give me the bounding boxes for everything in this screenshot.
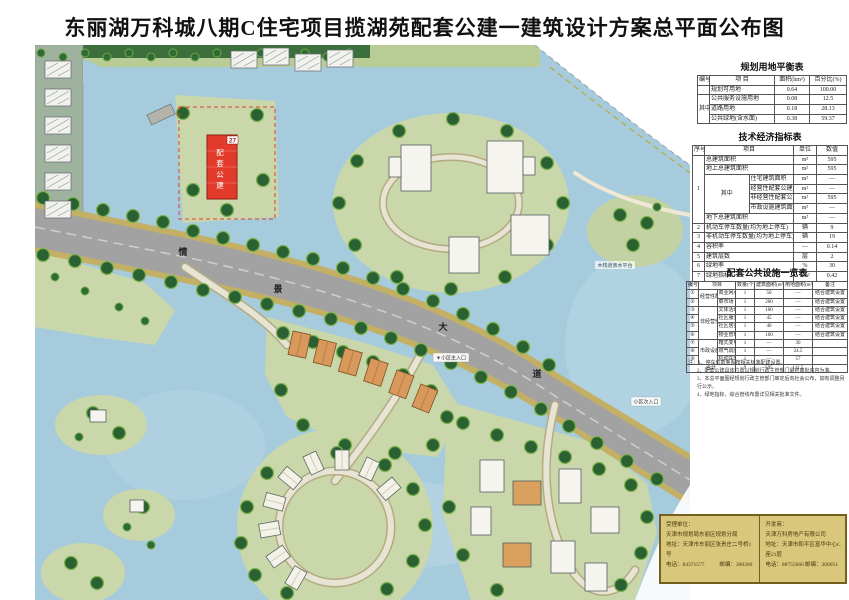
td-el: 1 <box>736 315 755 323</box>
td-el: 28.13 <box>810 105 847 115</box>
tree-icon <box>103 53 111 61</box>
td-el: 文体活动站 <box>717 306 736 314</box>
td-el: — <box>755 339 784 347</box>
tree-icon <box>391 271 404 284</box>
td-el: 1 <box>736 298 755 306</box>
page-title: 东丽湖万科城八期C住宅项目揽湖苑配套公建一建筑设计方案总平面公布图 <box>0 12 849 42</box>
td-el: 1 <box>736 339 755 347</box>
td-el: 燃气调压站 <box>717 348 736 356</box>
tree-icon <box>45 89 71 106</box>
accepting-unit-role: 受理单位： <box>666 521 755 531</box>
boardwalk-label: 木栈道亲水平台 <box>597 262 632 269</box>
td-el: ⑦ <box>687 339 699 347</box>
td-el: ④ <box>687 315 699 323</box>
tree-icon <box>45 173 71 190</box>
developer-zip: 邮编：300051 <box>805 561 838 571</box>
tree-icon <box>541 157 554 170</box>
td-el: m² <box>794 165 817 175</box>
note-line: 2、配套公建具体位置以规划行政主管部门最终审批内容为准。 <box>688 368 846 376</box>
tree-icon <box>241 501 254 514</box>
th-el: 百分比(%) <box>810 76 847 86</box>
th-el: 编号 <box>698 76 710 86</box>
tr-el: 地上总建筑面积m²595 <box>693 165 848 175</box>
tree-icon <box>505 386 518 399</box>
td-el: 非经营性配套公建 <box>699 306 718 339</box>
tree-icon <box>355 322 368 335</box>
main-entrance-label: ▼小区主入口 <box>436 355 466 362</box>
tree-icon <box>457 417 470 430</box>
tr-el: ⑦市政设施箱式变电站1—30 <box>687 339 848 347</box>
note-line: 3、本总平面图经规划行政主管部门审定后向社会公布，如有调整另行公示。 <box>688 376 846 392</box>
td-el: 容积率 <box>705 242 794 252</box>
th-el: 备注 <box>813 282 848 290</box>
text-el: 配 <box>216 148 224 157</box>
td-el: 595 <box>817 194 848 204</box>
accepting-unit-name: 天津市规划局东丽区规划分局 <box>666 531 755 541</box>
tree-icon <box>325 313 338 326</box>
td-el: 1 <box>736 290 755 298</box>
div-el: 电话：84371577 邮编：300300 <box>666 561 755 571</box>
tree-icon <box>625 479 638 492</box>
tr-el: 2机动车停车数量(均为地上停车)辆9 <box>693 223 848 233</box>
tree-icon <box>517 341 530 354</box>
tree-icon <box>491 584 504 597</box>
tree-icon <box>45 117 71 134</box>
text-el: 套 <box>216 158 224 168</box>
td-el: 1 <box>736 348 755 356</box>
accepting-unit-address: 地址：天津市东丽区张贵庄二号桥1号 <box>666 541 755 561</box>
note-line: 注：1、停车位数量系按相关标准配建设置。 <box>688 360 846 368</box>
tree-icon <box>635 547 648 560</box>
highlighted-public-building: 27 配 套 公 建 <box>207 135 238 199</box>
tree-icon <box>441 411 454 424</box>
land-balance-title: 规划用地平衡表 <box>697 60 847 73</box>
tree-icon <box>499 271 512 284</box>
tree-icon <box>333 197 346 210</box>
td-el: — <box>784 306 813 314</box>
tree-icon <box>487 323 500 336</box>
td-el: 经营性配套公建 <box>699 290 718 307</box>
ne-hill <box>587 195 683 267</box>
td-el: 1 <box>736 331 755 339</box>
tree-icon <box>397 283 410 296</box>
tree-icon <box>337 262 350 275</box>
td-el: 2 <box>817 252 848 262</box>
tree-icon <box>277 246 290 259</box>
tree-icon <box>475 371 488 384</box>
tree-icon <box>165 276 178 289</box>
developer-panel: 开发商： 天津万科房地产有限公司 地址：天津市和平区富华中心C座21层 电话：8… <box>760 516 845 582</box>
tree-icon <box>559 451 572 464</box>
road-char-2: 景 <box>273 284 282 294</box>
td-el: m² <box>794 194 817 204</box>
td-el: — <box>784 315 813 323</box>
tr-el: 地下总建筑面积m²— <box>693 213 848 223</box>
td-el: 40 <box>755 323 784 331</box>
td-el: 0.08 <box>775 95 810 105</box>
td-el: — <box>817 175 848 185</box>
tree-icon <box>51 273 59 281</box>
td-el: 结合建筑设置 <box>813 306 848 314</box>
tree-icon <box>335 450 349 470</box>
td-el: 12.5 <box>810 95 847 105</box>
tree-icon <box>45 201 71 218</box>
tree-icon <box>65 557 78 570</box>
rect-el <box>401 145 431 191</box>
tree-icon <box>187 225 200 238</box>
road-char-3: 大 <box>438 321 447 332</box>
rect-el <box>591 507 619 533</box>
tree-icon <box>501 125 514 138</box>
td-el: m² <box>794 204 817 214</box>
tree-icon <box>295 54 321 71</box>
tree-icon <box>221 204 234 217</box>
tree-icon <box>651 473 664 486</box>
tree-icon <box>37 249 50 262</box>
td-el <box>813 339 848 347</box>
tree-icon <box>367 272 380 285</box>
tree-icon <box>59 53 67 61</box>
td-el: 市政设施建筑面积 <box>749 204 794 214</box>
tbody-el: 编号 项目 数量(个) 建筑面积(m²) 用地面积(m²) 备注 ①经营性配套公… <box>687 282 848 373</box>
tree-icon <box>275 384 288 397</box>
td-el: 160 <box>755 331 784 339</box>
th-el: 数量(个) <box>736 282 755 290</box>
td-el: — <box>817 213 848 223</box>
site-plan-svg: 27 配 套 公 建 情 景 大 道 ▼小区主入口 小区次入口 木栈 <box>35 45 690 600</box>
tree-icon <box>231 51 257 68</box>
tree-icon <box>69 255 82 268</box>
tree-icon <box>113 427 126 440</box>
tree-icon <box>447 113 460 126</box>
table-notes: 注：1、停车位数量系按相关标准配建设置。 2、配套公建具体位置以规划行政主管部门… <box>688 360 846 400</box>
rect-el <box>130 500 144 512</box>
text-el: 建 <box>216 180 224 190</box>
th-el: 用地面积(m²) <box>784 282 813 290</box>
td-el: 其中 <box>698 95 710 124</box>
th-el: 单位 <box>794 146 817 156</box>
td-el: 1 <box>736 323 755 331</box>
td-el: m² <box>794 175 817 185</box>
td-el: — <box>784 331 813 339</box>
tree-icon <box>191 53 199 61</box>
td-el: 住宅建筑面积 <box>749 175 794 185</box>
tree-icon <box>81 287 89 295</box>
td-el: 商业网点 <box>717 290 736 298</box>
td-el: 0.18 <box>775 105 810 115</box>
tree-icon <box>263 48 289 65</box>
tree-icon <box>249 569 262 582</box>
td-el: — <box>817 204 848 214</box>
tree-icon <box>627 239 640 252</box>
td-el: 地下总建筑面积 <box>705 213 794 223</box>
td-el: 0.14 <box>817 242 848 252</box>
td-el: — <box>794 242 817 252</box>
td-el: 结合建筑设置 <box>813 298 848 306</box>
td-el: 30 <box>784 339 813 347</box>
accepting-unit-phone: 电话：84371577 <box>666 561 705 571</box>
tree-icon <box>261 298 274 311</box>
td-el: 3 <box>693 233 705 243</box>
tree-icon <box>385 332 398 345</box>
td-el <box>698 85 710 95</box>
tree-icon <box>407 483 420 496</box>
td-el: 建筑层数 <box>705 252 794 262</box>
tr-el: ③非经营性配套公建文体活动站1100—结合建筑设置 <box>687 306 848 314</box>
td-el: 辆 <box>794 233 817 243</box>
td-el: 4 <box>693 242 705 252</box>
th-el: 数值 <box>817 146 848 156</box>
tree-icon <box>379 459 392 472</box>
tree-icon <box>407 555 420 568</box>
rect-el <box>523 157 535 175</box>
tree-icon <box>169 49 177 57</box>
th-el: 建筑面积(m²) <box>755 282 784 290</box>
tree-icon <box>141 317 149 325</box>
tr-el: 编号 项 目 面积(hm²) 百分比(%) <box>698 76 847 86</box>
rect-el <box>90 410 106 422</box>
tree-icon <box>75 433 83 441</box>
g-el: ▼小区主入口 <box>433 353 469 362</box>
td-el: — <box>784 298 813 306</box>
td-el: 0.64 <box>775 85 810 95</box>
td-el: 总建筑面积 <box>705 155 794 165</box>
td-el: 公共绿地(含水面) <box>710 114 775 124</box>
tree-icon <box>81 49 89 57</box>
tree-icon <box>525 441 538 454</box>
tech-indicators-title: 技术经济指标表 <box>692 130 848 143</box>
text-el: 公 <box>216 170 224 179</box>
tree-icon <box>591 437 604 450</box>
tree-icon <box>281 587 294 600</box>
th-el: 项目 <box>699 282 736 290</box>
tree-icon <box>621 455 634 468</box>
developer-role: 开发商： <box>765 521 841 531</box>
td-el: 结合建筑设置 <box>813 331 848 339</box>
tree-icon <box>443 501 456 514</box>
rect-el <box>480 460 504 492</box>
tree-icon <box>557 197 570 210</box>
td-el: ⑥ <box>687 331 699 339</box>
tree-icon <box>535 403 548 416</box>
td-el: ③ <box>687 306 699 314</box>
tbody-el: 序号 项目 单位 数值 1总建筑面积m²595 地上总建筑面积m²595 其中住… <box>693 146 848 282</box>
tree-icon <box>593 463 606 476</box>
tr-el: ①经营性配套公建商业网点150—结合建筑设置 <box>687 290 848 298</box>
tree-icon <box>261 467 274 480</box>
accepting-unit-zip: 邮编：300300 <box>719 561 752 571</box>
tree-icon <box>393 125 406 138</box>
tr-el: 道路用地0.1828.13 <box>698 105 847 115</box>
tbody-el: 编号 项 目 面积(hm²) 百分比(%) 规划可用地0.64100.00 其中… <box>698 76 847 124</box>
td-el: 公共服务设施用地 <box>710 95 775 105</box>
g-el: 木栈道亲水平台 <box>595 261 635 269</box>
tree-icon <box>327 50 353 67</box>
td-el: 机动车停车数量(均为地上停车) <box>705 223 794 233</box>
td-el: 1 <box>736 306 755 314</box>
rect-el <box>513 481 541 505</box>
tree-icon <box>563 420 576 433</box>
ellipse-el <box>103 489 175 541</box>
div-el: 电话：88755666 邮编：300051 <box>765 561 841 571</box>
tree-icon <box>457 308 470 321</box>
td-el: 物业管理用房 <box>717 331 736 339</box>
tree-icon <box>133 269 146 282</box>
td-el: 100.00 <box>810 85 847 95</box>
rect-el <box>487 141 523 193</box>
contact-block: 受理单位： 天津市规划局东丽区规划分局 地址：天津市东丽区张贵庄二号桥1号 电话… <box>659 514 847 584</box>
td-el: 非机动车停车数量(均为地上停车) <box>705 233 794 243</box>
tree-icon <box>45 61 71 78</box>
td-el: ⑤ <box>687 323 699 331</box>
tree-icon <box>247 239 260 252</box>
td-el: 结合建筑设置 <box>813 323 848 331</box>
tree-icon <box>197 284 210 297</box>
tree-icon <box>445 283 458 296</box>
tree-icon <box>157 216 170 229</box>
developer-phone: 电话：88755666 <box>765 561 804 571</box>
road-char-4: 道 <box>532 368 541 379</box>
td-el: 0.38 <box>775 114 810 124</box>
developer-name: 天津万科房地产有限公司 <box>765 531 841 541</box>
rect-el <box>503 543 531 567</box>
td-el: 5 <box>693 252 705 262</box>
th-el: 编号 <box>687 282 699 290</box>
rect-el <box>511 215 549 255</box>
plan-sheet: 东丽湖万科城八期C住宅项目揽湖苑配套公建一建筑设计方案总平面公布图 <box>0 0 849 600</box>
tree-icon <box>101 262 114 275</box>
td-el: 59.37 <box>810 114 847 124</box>
tree-icon <box>213 49 221 57</box>
rect-el <box>551 541 575 573</box>
tr-el: 序号 项目 单位 数值 <box>693 146 848 156</box>
td-el: 200 <box>755 298 784 306</box>
tr-el: 其中公共服务设施用地0.0812.5 <box>698 95 847 105</box>
td-el: 结合建筑设置 <box>813 290 848 298</box>
tree-icon <box>251 109 264 122</box>
tr-el: 编号 项目 数量(个) 建筑面积(m²) 用地面积(m²) 备注 <box>687 282 848 290</box>
tree-icon <box>491 429 504 442</box>
tree-icon <box>123 523 131 531</box>
tree-icon <box>147 53 155 61</box>
tech-indicators-section: 技术经济指标表 序号 项目 单位 数值 1总建筑面积m²595 地上总建筑面积m… <box>692 130 848 282</box>
tree-icon <box>259 521 281 538</box>
tr-el: 规划可用地0.64100.00 <box>698 85 847 95</box>
tree-icon <box>297 419 310 432</box>
tree-icon <box>37 49 45 57</box>
tree-icon <box>415 344 428 357</box>
ellipse-el <box>55 395 147 455</box>
td-el: 结合建筑设置 <box>813 315 848 323</box>
tr-el: 其中住宅建筑面积m²— <box>693 175 848 185</box>
td-el: — <box>784 323 813 331</box>
td-el: ① <box>687 290 699 298</box>
facilities-title: 配套公共设施一览表 <box>686 266 848 279</box>
tree-icon <box>381 583 394 596</box>
tr-el: 3非机动车停车数量(均为地上停车)辆19 <box>693 233 848 243</box>
td-el: 层 <box>794 252 817 262</box>
td-el: — <box>755 348 784 356</box>
accepting-unit-panel: 受理单位： 天津市规划局东丽区规划分局 地址：天津市东丽区张贵庄二号桥1号 电话… <box>661 516 760 582</box>
tree-icon <box>614 209 627 222</box>
tree-icon <box>427 439 440 452</box>
tree-icon <box>235 537 248 550</box>
tree-icon <box>641 217 654 230</box>
td-el: 箱式变电站 <box>717 339 736 347</box>
side-entrance-label: 小区次入口 <box>633 399 658 406</box>
td-el: — <box>784 290 813 298</box>
tree-icon <box>419 519 432 532</box>
td-el: 595 <box>817 165 848 175</box>
tree-icon <box>45 145 71 162</box>
td-el: ⑧ <box>687 348 699 356</box>
tree-icon <box>257 174 270 187</box>
td-el: 经营性配套公建建筑面积 <box>749 184 794 194</box>
tree-icon <box>127 210 140 223</box>
facilities-table: 编号 项目 数量(个) 建筑面积(m²) 用地面积(m²) 备注 ①经营性配套公… <box>686 281 848 373</box>
tree-icon <box>177 107 190 120</box>
td-el: 社区居委会 <box>717 323 736 331</box>
td-el: — <box>817 184 848 194</box>
land-balance-section: 规划用地平衡表 编号 项 目 面积(hm²) 百分比(%) 规划可用地0.641… <box>697 60 847 124</box>
tr-el: 1总建筑面积m²595 <box>693 155 848 165</box>
td-el: 辆 <box>794 223 817 233</box>
tree-icon <box>97 204 110 217</box>
tr-el: 5建筑层数层2 <box>693 252 848 262</box>
tree-icon <box>293 305 306 318</box>
tree-icon <box>229 291 242 304</box>
td-el: 2 <box>693 223 705 233</box>
tree-icon <box>457 549 470 562</box>
td-el: m² <box>794 155 817 165</box>
rect-el <box>389 157 401 177</box>
tree-icon <box>91 577 104 590</box>
site-plan-map: 27 配 套 公 建 情 景 大 道 ▼小区主入口 小区次入口 木栈 <box>35 45 690 600</box>
td-el: 地上总建筑面积 <box>705 165 794 175</box>
tree-icon <box>427 295 440 308</box>
tree-icon <box>389 447 402 460</box>
th-el: 项 目 <box>710 76 775 86</box>
tree-icon <box>653 203 661 211</box>
land-balance-table: 编号 项 目 面积(hm²) 百分比(%) 规划可用地0.64100.00 其中… <box>697 75 847 124</box>
rect-el <box>471 507 491 535</box>
road-char-1: 情 <box>177 246 187 257</box>
td-el: 其中 <box>705 175 750 214</box>
tree-icon <box>349 239 362 252</box>
tree-icon <box>615 579 628 592</box>
td-el: m² <box>794 213 817 223</box>
g-el: 小区次入口 <box>631 397 661 406</box>
th-el: 序号 <box>693 146 705 156</box>
td-el: 规划可用地 <box>710 85 775 95</box>
tree-icon <box>187 184 200 197</box>
developer-address: 地址：天津市和平区富华中心C座21层 <box>765 541 841 561</box>
td-el: 道路用地 <box>710 105 775 115</box>
td-el: 菜市场 <box>717 298 736 306</box>
td-el: 社区服务站 <box>717 315 736 323</box>
rect-el <box>559 469 581 503</box>
td-el <box>813 348 848 356</box>
note-line: 4、绿地指标、综合管线布置详见相关批准文件。 <box>688 392 846 400</box>
tree-icon <box>351 155 364 168</box>
td-el: 9 <box>817 223 848 233</box>
tree-icon <box>277 327 290 340</box>
td-el: 50 <box>755 290 784 298</box>
th-el: 项目 <box>705 146 794 156</box>
facilities-section: 配套公共设施一览表 编号 项目 数量(个) 建筑面积(m²) 用地面积(m²) … <box>686 266 848 373</box>
td-el: ② <box>687 298 699 306</box>
tree-icon <box>147 541 155 549</box>
